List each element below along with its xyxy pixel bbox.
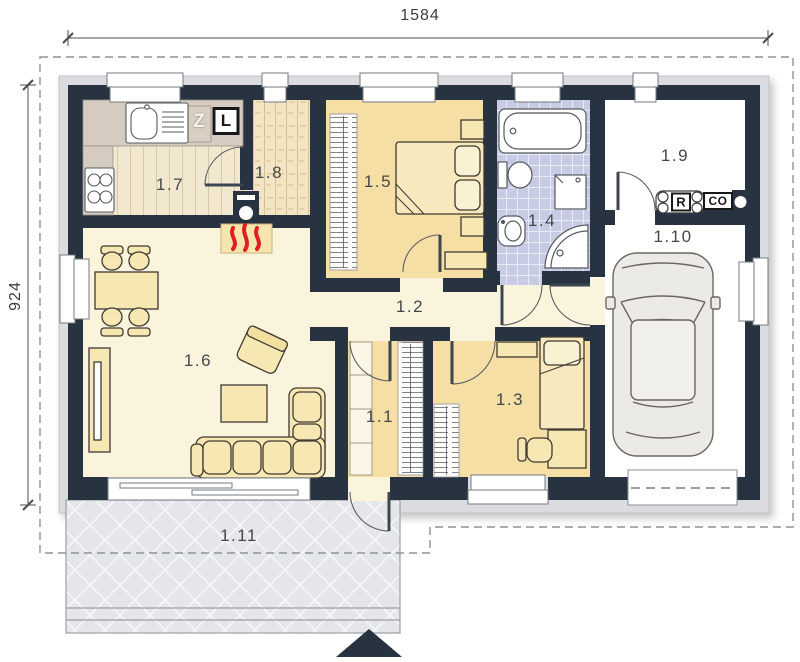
fridge-badge: L <box>213 107 240 135</box>
chair <box>129 252 149 270</box>
room-label-1-11: 1.11 <box>220 526 258 546</box>
radiator-badge: R <box>671 193 691 212</box>
dimension-top: 1584 <box>400 7 440 25</box>
floor-plan-page: 1.7 1.8 1.5 1.4 1.9 1.10 1.6 1.2 1.1 1.3… <box>0 0 800 662</box>
room-label-1-8: 1.8 <box>255 163 283 183</box>
window <box>360 73 438 102</box>
window <box>107 73 183 102</box>
window <box>633 73 658 102</box>
chair <box>129 308 149 326</box>
room-label-1-5: 1.5 <box>364 172 392 192</box>
room-label-1-7: 1.7 <box>156 175 184 195</box>
desk <box>548 430 586 468</box>
room-label-1-6: 1.6 <box>184 351 212 371</box>
window <box>60 255 89 323</box>
boiler-badge: CO <box>703 192 733 210</box>
room-label-1-3: 1.3 <box>496 390 524 410</box>
shelf <box>497 342 537 357</box>
window <box>512 73 563 102</box>
window <box>468 475 548 504</box>
chair <box>102 252 122 270</box>
room-label-1-10: 1.10 <box>653 227 692 247</box>
room-label-1-1: 1.1 <box>366 407 394 427</box>
terrace <box>66 500 400 633</box>
floor-entrance <box>348 477 390 501</box>
dishwasher-badge: Z <box>186 106 212 138</box>
toilet <box>508 162 532 188</box>
nightstand <box>461 120 484 139</box>
room-label-1-9: 1.9 <box>661 146 689 166</box>
car <box>606 253 720 456</box>
floor-plan-drawing <box>0 0 800 662</box>
desk-chair <box>527 438 552 462</box>
bathtub <box>499 109 586 153</box>
window <box>262 73 288 102</box>
toilet-tank <box>498 162 507 188</box>
window <box>739 258 768 325</box>
dimension-left: 924 <box>7 281 25 311</box>
room-label-1-2: 1.2 <box>396 297 424 317</box>
patio-sliding-door <box>108 478 310 500</box>
room-label-1-4: 1.4 <box>528 211 556 231</box>
coffee-table <box>221 385 267 422</box>
chair <box>102 308 122 326</box>
nightstand <box>461 217 484 236</box>
dining-table <box>95 272 158 309</box>
garage-door <box>628 470 737 505</box>
bench <box>445 252 487 269</box>
